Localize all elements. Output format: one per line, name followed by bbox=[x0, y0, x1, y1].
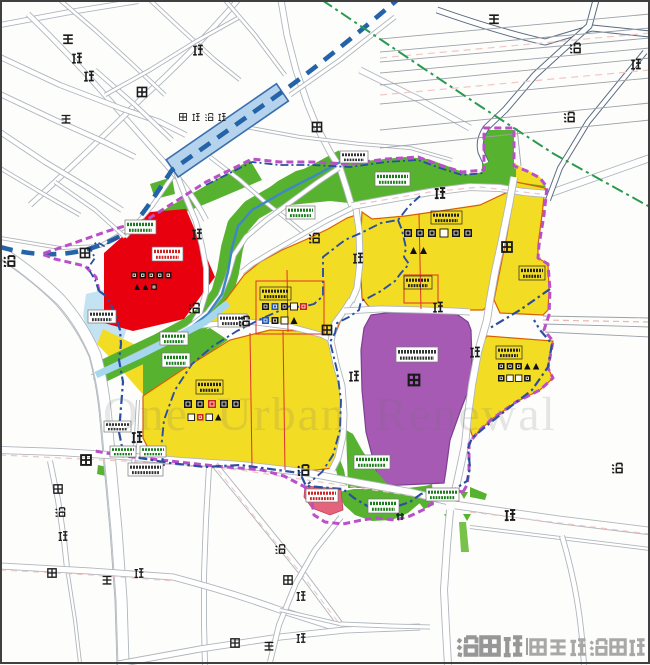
svg-text:One Urban Renewal: One Urban Renewal bbox=[103, 388, 557, 441]
